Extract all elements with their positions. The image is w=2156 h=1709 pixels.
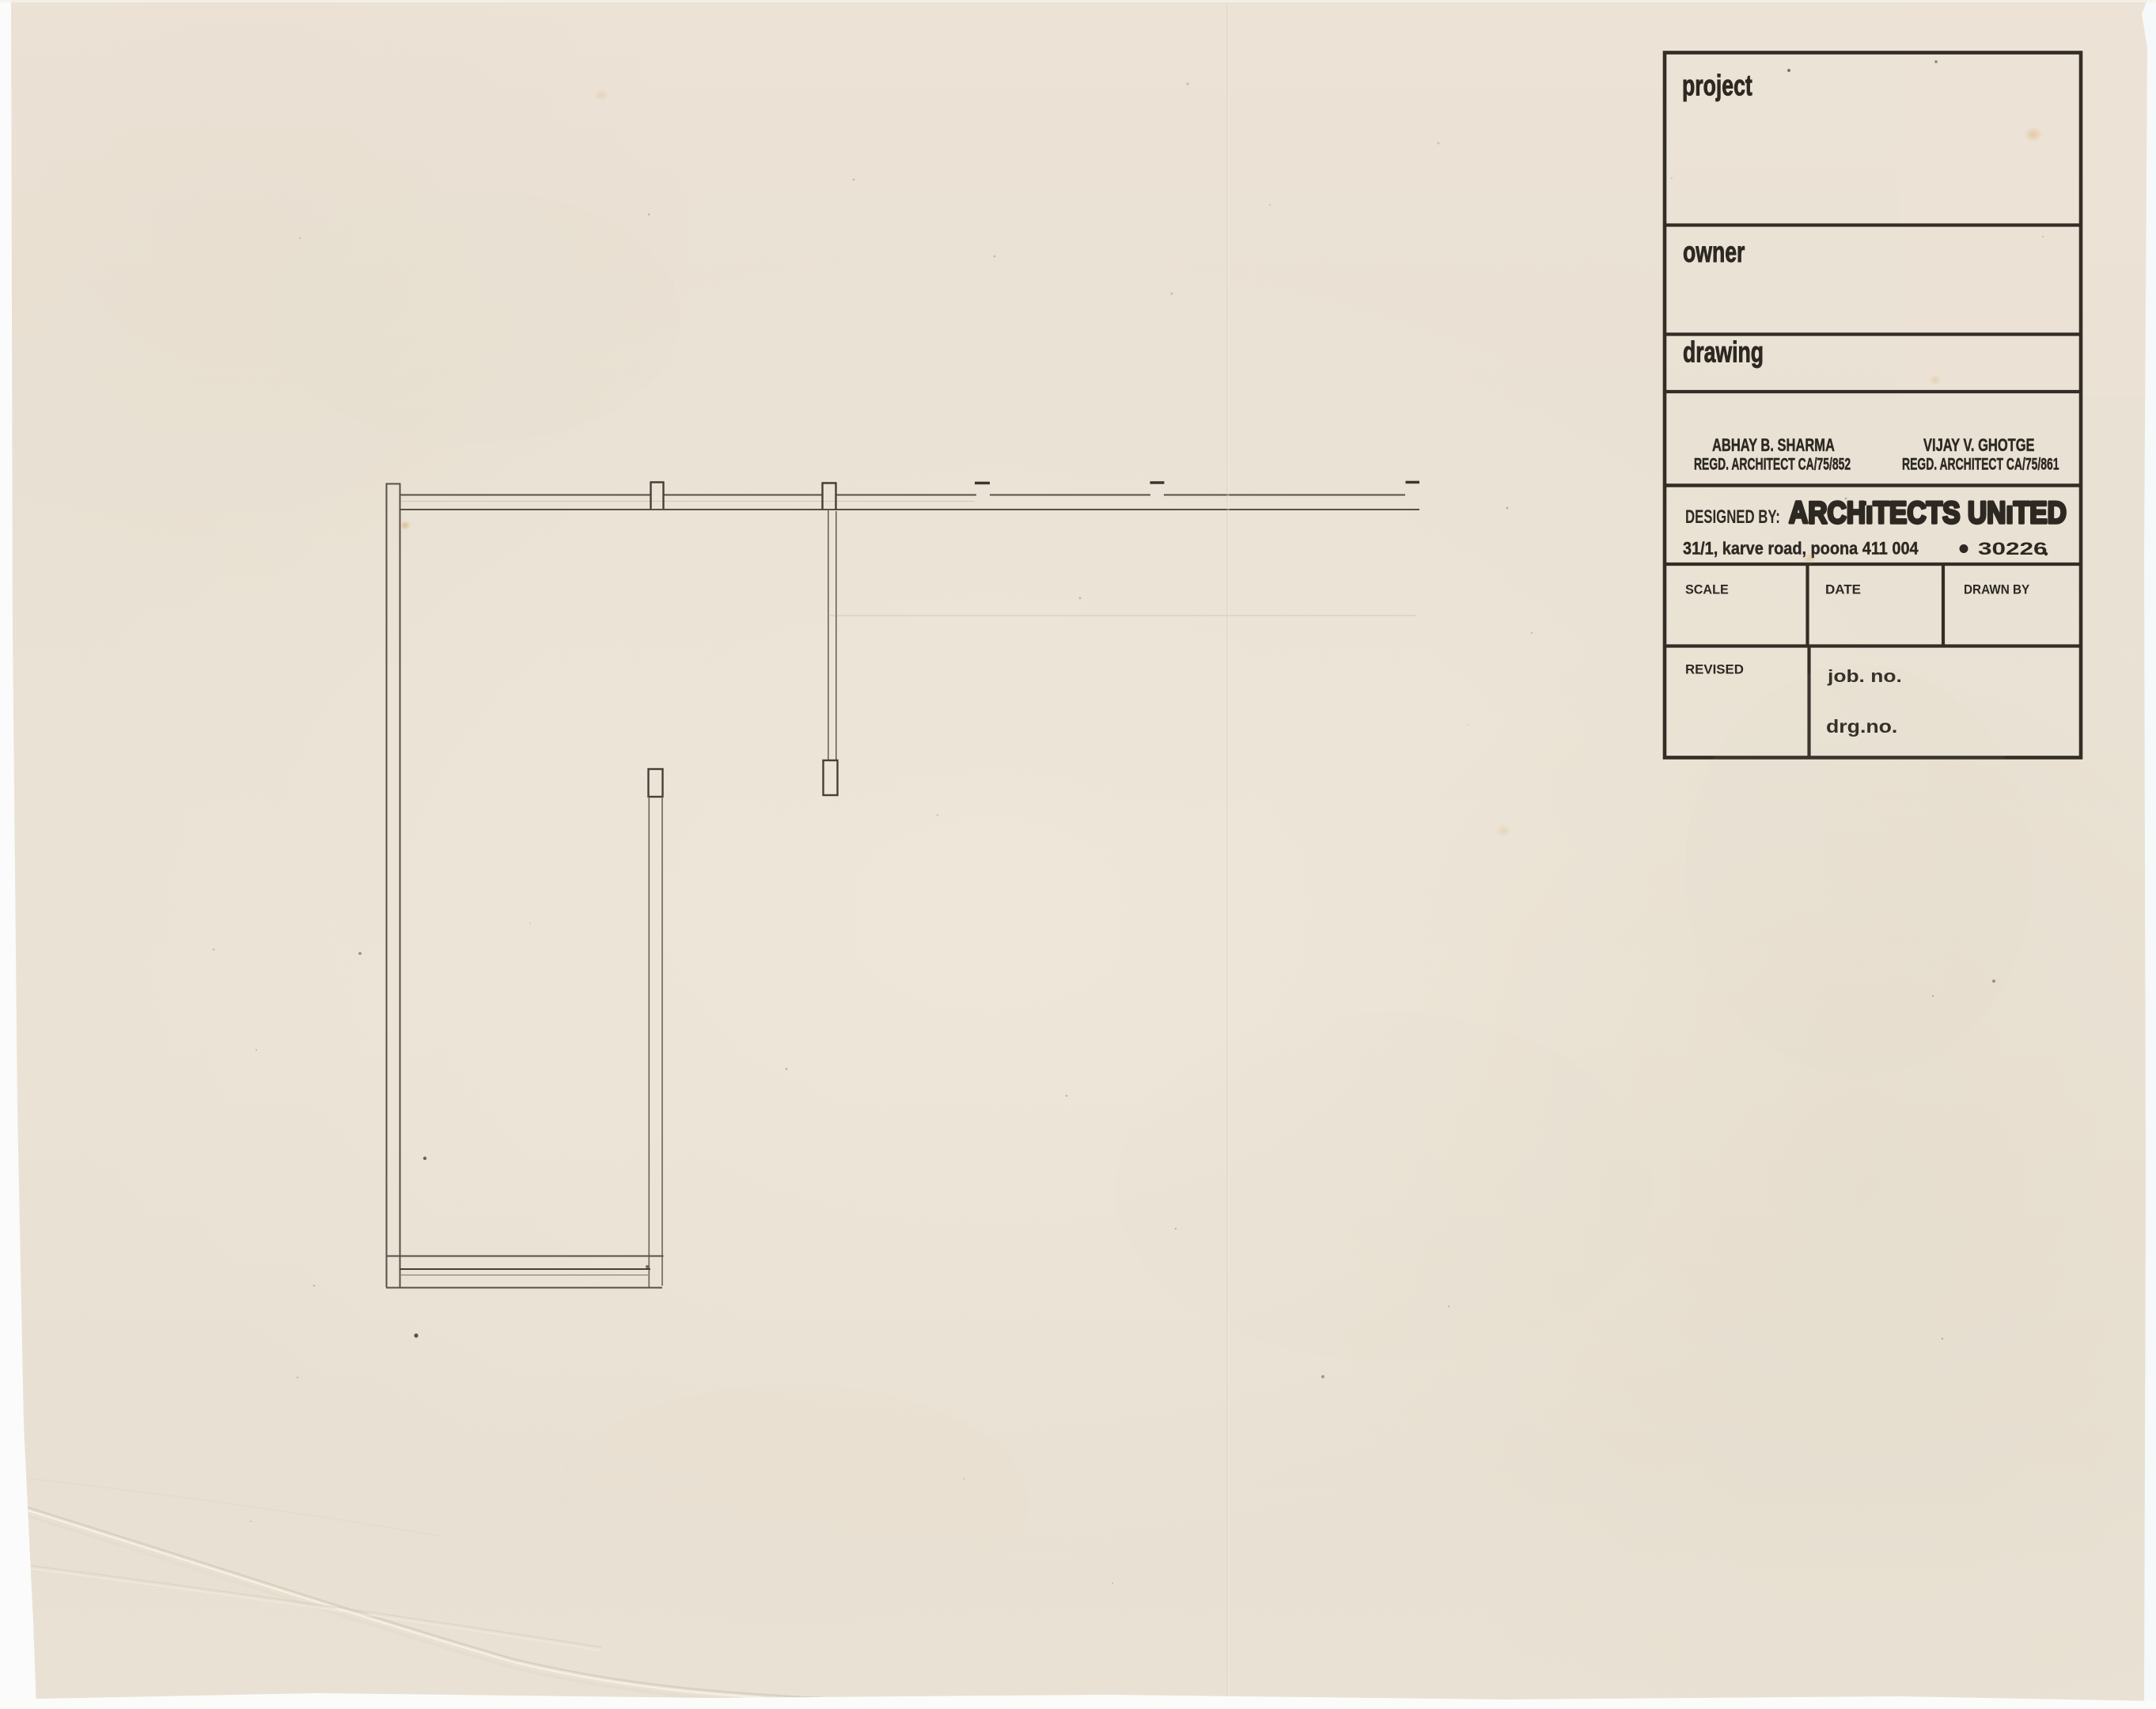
svg-text:30226: 30226 [1978, 538, 2048, 558]
svg-text:SCALE: SCALE [1685, 582, 1729, 597]
svg-text:ARCHıTECTS UNıTED: ARCHıTECTS UNıTED [1789, 495, 2067, 530]
svg-text:owner: owner [1683, 236, 1745, 268]
svg-text:VIJAY V. GHOTGE: VIJAY V. GHOTGE [1923, 436, 2035, 456]
svg-text:DESIGNED BY:: DESIGNED BY: [1685, 506, 1780, 528]
svg-text:31/1, karve road, poona 411 00: 31/1, karve road, poona 411 004 [1683, 538, 1919, 558]
svg-text:ABHAY B. SHARMA: ABHAY B. SHARMA [1712, 436, 1835, 456]
svg-text:REGD. ARCHITECT CA/75/861: REGD. ARCHITECT CA/75/861 [1902, 455, 2059, 474]
svg-text:DRAWN BY: DRAWN BY [1964, 582, 2029, 597]
svg-text:DATE: DATE [1825, 582, 1861, 597]
svg-text:project: project [1682, 69, 1752, 101]
svg-text:REGD. ARCHITECT CA/75/852: REGD. ARCHITECT CA/75/852 [1694, 455, 1851, 474]
svg-text:drawing: drawing [1683, 335, 1764, 368]
svg-text:REVISED: REVISED [1685, 662, 1744, 677]
